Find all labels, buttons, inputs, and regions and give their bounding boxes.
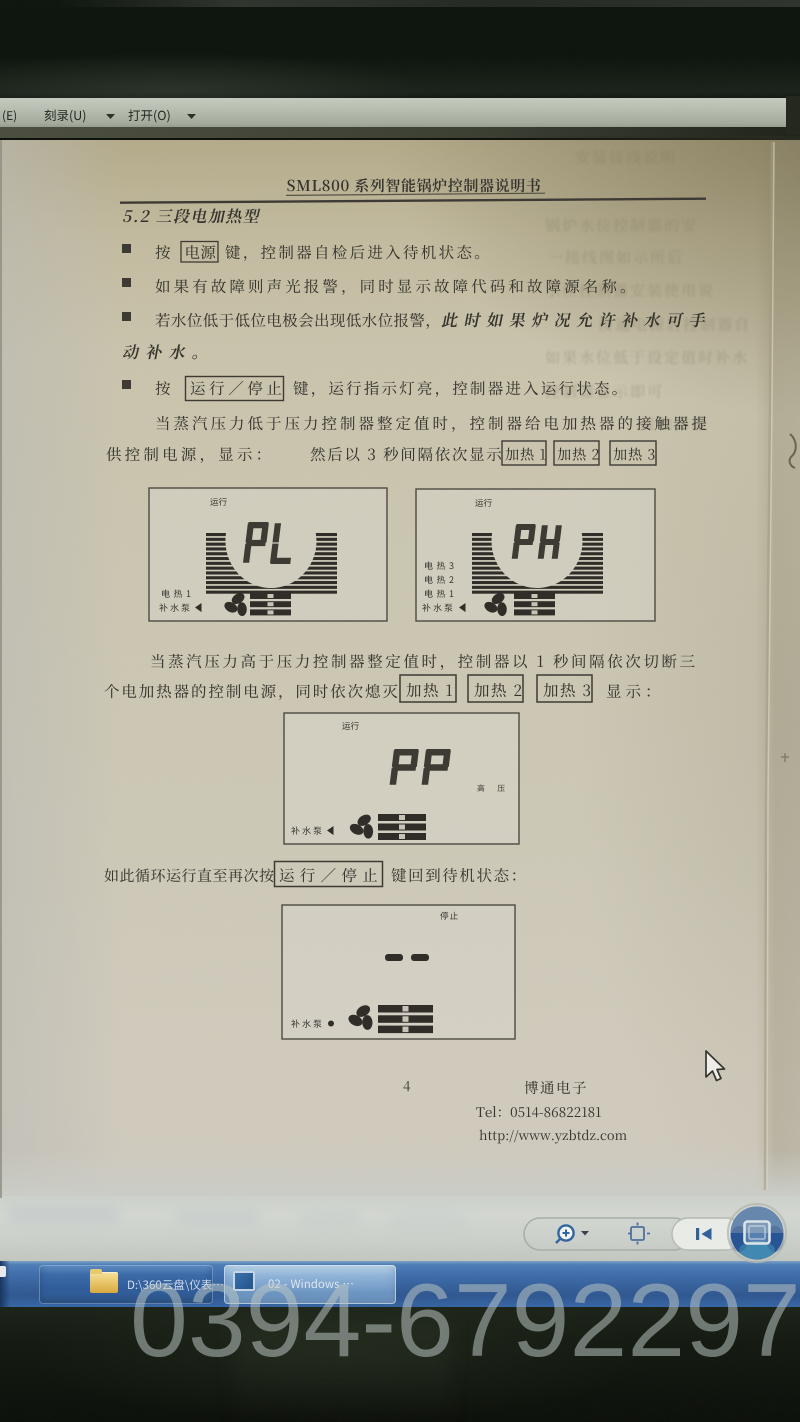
svg-text:0394-6792297: 0394-6792297 (130, 1263, 800, 1379)
